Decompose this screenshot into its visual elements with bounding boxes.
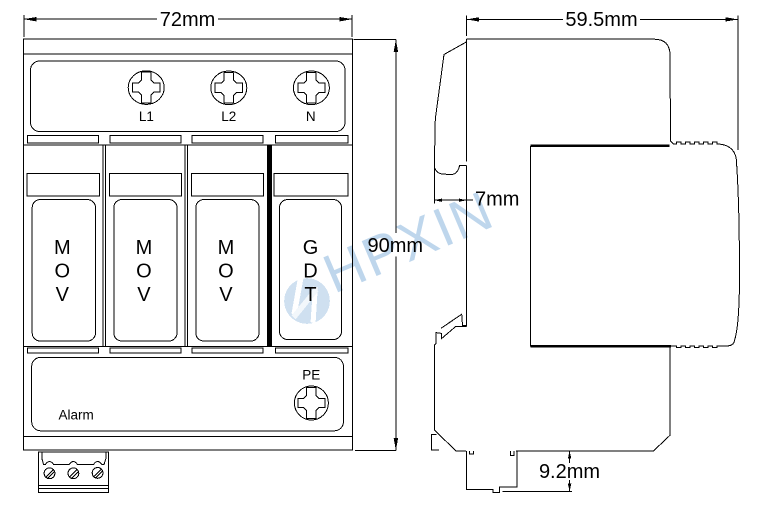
- svg-text:M: M: [54, 237, 71, 259]
- svg-text:G: G: [303, 237, 319, 259]
- svg-text:M: M: [218, 237, 235, 259]
- svg-text:L1: L1: [139, 109, 154, 124]
- svg-text:72mm: 72mm: [160, 9, 216, 31]
- svg-text:59.5mm: 59.5mm: [565, 9, 637, 31]
- svg-text:D: D: [303, 261, 317, 283]
- svg-text:V: V: [137, 284, 151, 306]
- svg-text:9.2mm: 9.2mm: [539, 461, 600, 483]
- svg-text:PE: PE: [302, 368, 320, 383]
- svg-text:90mm: 90mm: [368, 235, 424, 257]
- svg-text:O: O: [218, 261, 234, 283]
- svg-text:Alarm: Alarm: [59, 408, 94, 423]
- svg-text:M: M: [136, 237, 153, 259]
- svg-text:O: O: [136, 261, 152, 283]
- svg-text:O: O: [55, 261, 71, 283]
- svg-text:7mm: 7mm: [475, 189, 519, 211]
- svg-text:T: T: [304, 284, 316, 306]
- svg-text:N: N: [306, 109, 316, 124]
- svg-text:V: V: [219, 284, 233, 306]
- svg-text:V: V: [56, 284, 70, 306]
- svg-text:L2: L2: [221, 109, 236, 124]
